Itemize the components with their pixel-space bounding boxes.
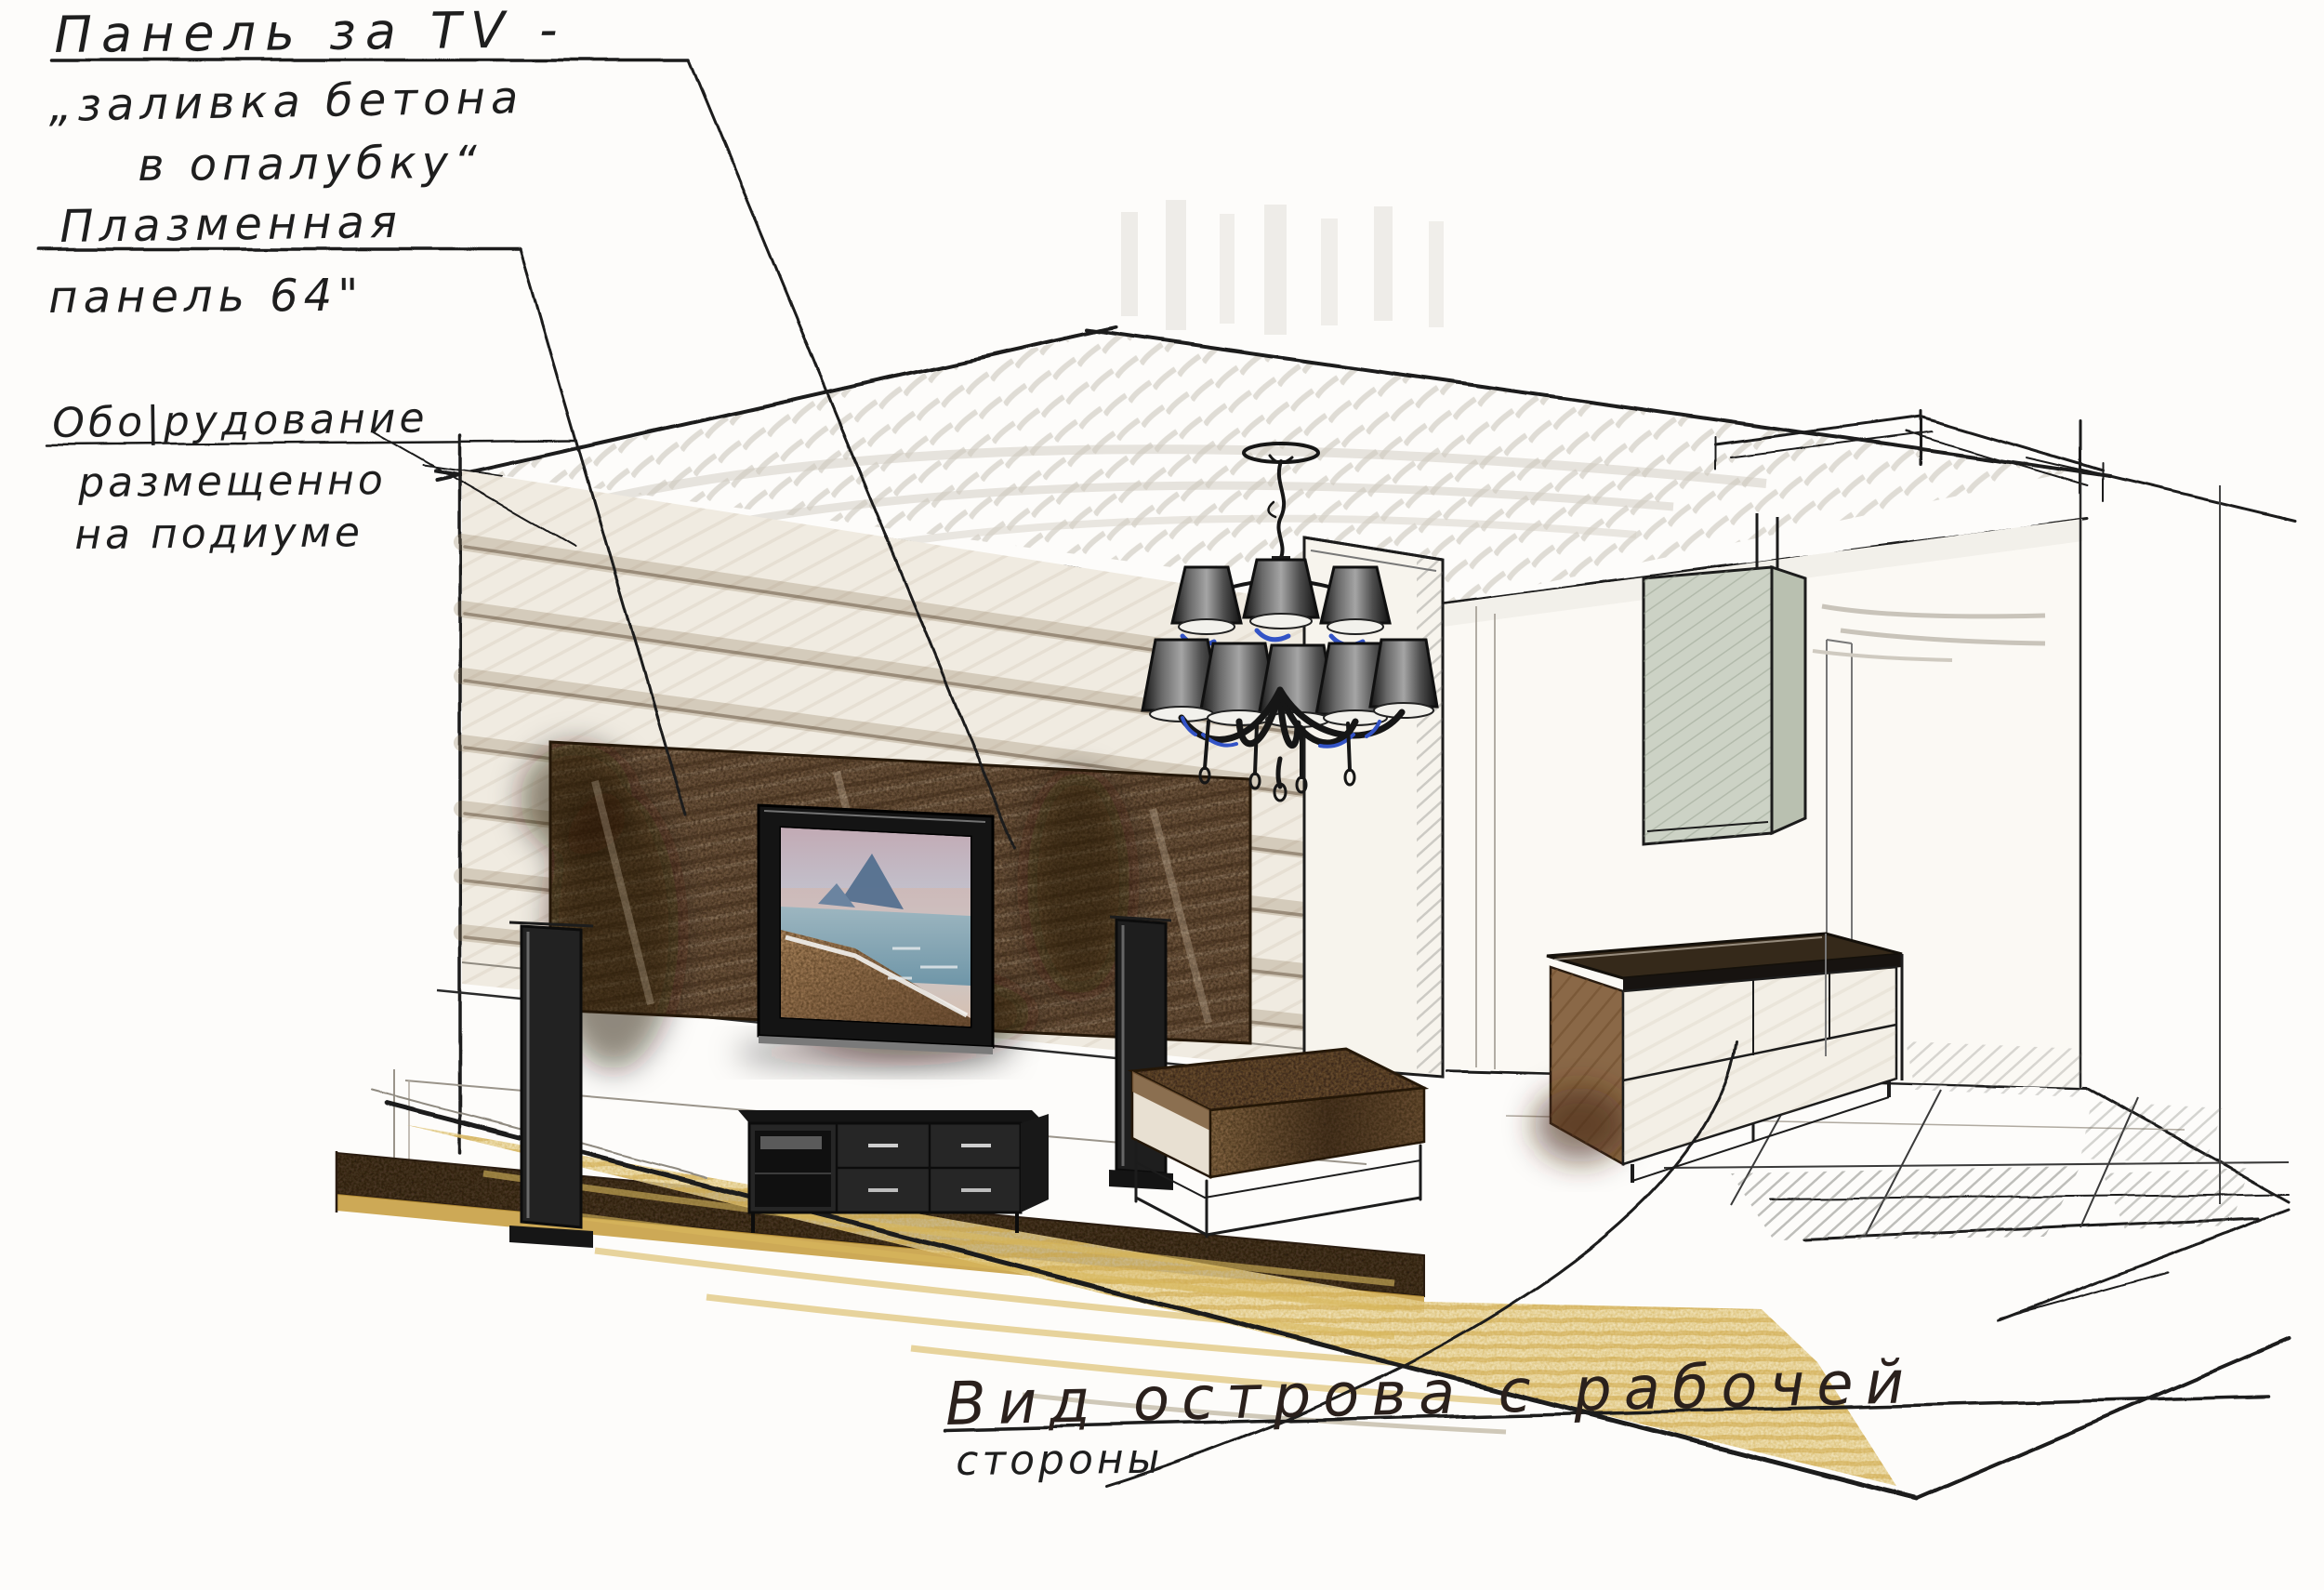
annotation-equipment-note-line2: размещенно bbox=[78, 457, 387, 507]
sketch-page: Панель за TV - „заливка бетона в опалубк… bbox=[0, 0, 2324, 1590]
annotation-equipment-note-line3: на подиуме bbox=[74, 509, 363, 559]
left-speaker bbox=[509, 922, 593, 1248]
annotation-tv-wall-note-line3: в опалубку“ bbox=[138, 137, 482, 192]
annotation-plasma-note-line2: панель 64" bbox=[48, 270, 363, 324]
annotation-equipment-note-line1: Обо|рудование bbox=[52, 394, 429, 447]
tv-screen-beach-photo bbox=[781, 828, 971, 1027]
coffee-table bbox=[1132, 1049, 1424, 1237]
plasma-tv bbox=[734, 805, 1013, 1067]
annotation-island-note-line2: стороны bbox=[956, 1436, 1164, 1485]
annotation-tv-wall-note-line1: Панель за TV - bbox=[54, 0, 567, 64]
annotation-plasma-note-line1: Плазменная bbox=[59, 196, 403, 253]
paper-watermark bbox=[1129, 200, 1436, 335]
annotation-tv-wall-note-line2: „заливка бетона bbox=[48, 72, 524, 132]
